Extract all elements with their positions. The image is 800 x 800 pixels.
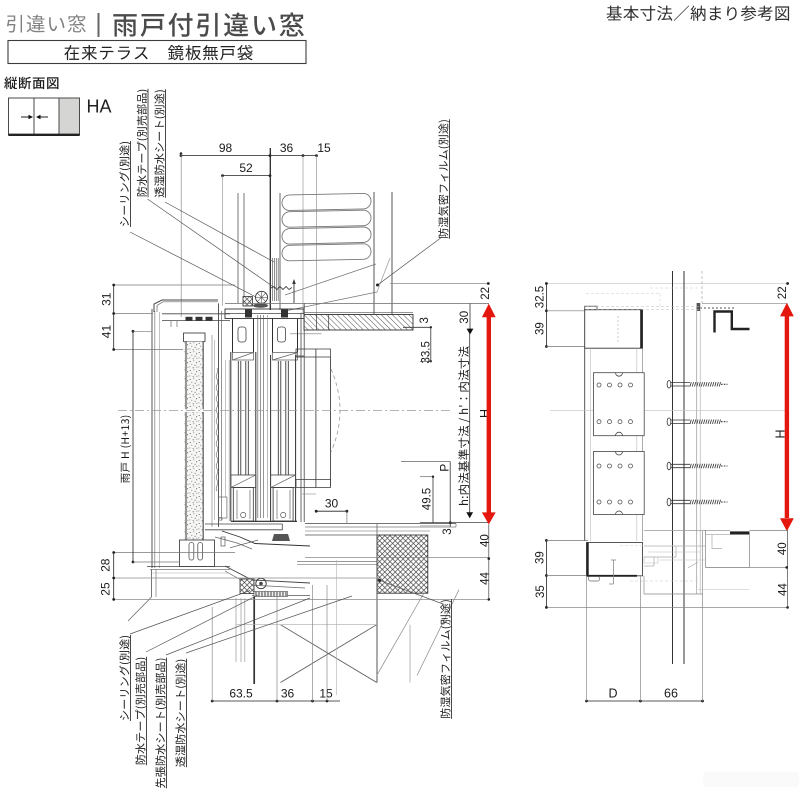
svg-text:44: 44 <box>480 572 492 585</box>
svg-text:66: 66 <box>664 687 678 701</box>
svg-text:P: P <box>438 464 452 472</box>
svg-text:44: 44 <box>778 583 790 596</box>
svg-text:40: 40 <box>777 542 789 555</box>
svg-text:22: 22 <box>480 287 492 300</box>
svg-text:3: 3 <box>419 317 431 323</box>
svg-text:40: 40 <box>480 534 492 547</box>
svg-text:3: 3 <box>442 528 454 534</box>
svg-text:63.5: 63.5 <box>229 687 253 701</box>
svg-text:30: 30 <box>459 311 471 324</box>
svg-text:30: 30 <box>325 497 339 511</box>
svg-text:52: 52 <box>239 161 253 175</box>
svg-text:36: 36 <box>280 141 294 155</box>
svg-text:HA: HA <box>87 97 112 117</box>
svg-text:22: 22 <box>777 286 789 299</box>
svg-text:15: 15 <box>317 141 331 155</box>
svg-text:25: 25 <box>99 582 113 596</box>
svg-text:98: 98 <box>219 141 233 155</box>
svg-text:36: 36 <box>281 687 295 701</box>
svg-text:31: 31 <box>100 292 114 306</box>
svg-text:D: D <box>608 687 617 701</box>
svg-text:49.5: 49.5 <box>422 488 434 510</box>
svg-text:28: 28 <box>99 558 113 572</box>
svg-text:35: 35 <box>535 585 547 598</box>
svg-text:H: H <box>774 429 788 438</box>
svg-text:32.5: 32.5 <box>535 286 547 308</box>
svg-text:39: 39 <box>535 322 547 335</box>
svg-text:39: 39 <box>535 551 547 564</box>
svg-text:15: 15 <box>319 687 333 701</box>
svg-text:33.5: 33.5 <box>420 341 432 363</box>
svg-text:41: 41 <box>100 325 114 339</box>
